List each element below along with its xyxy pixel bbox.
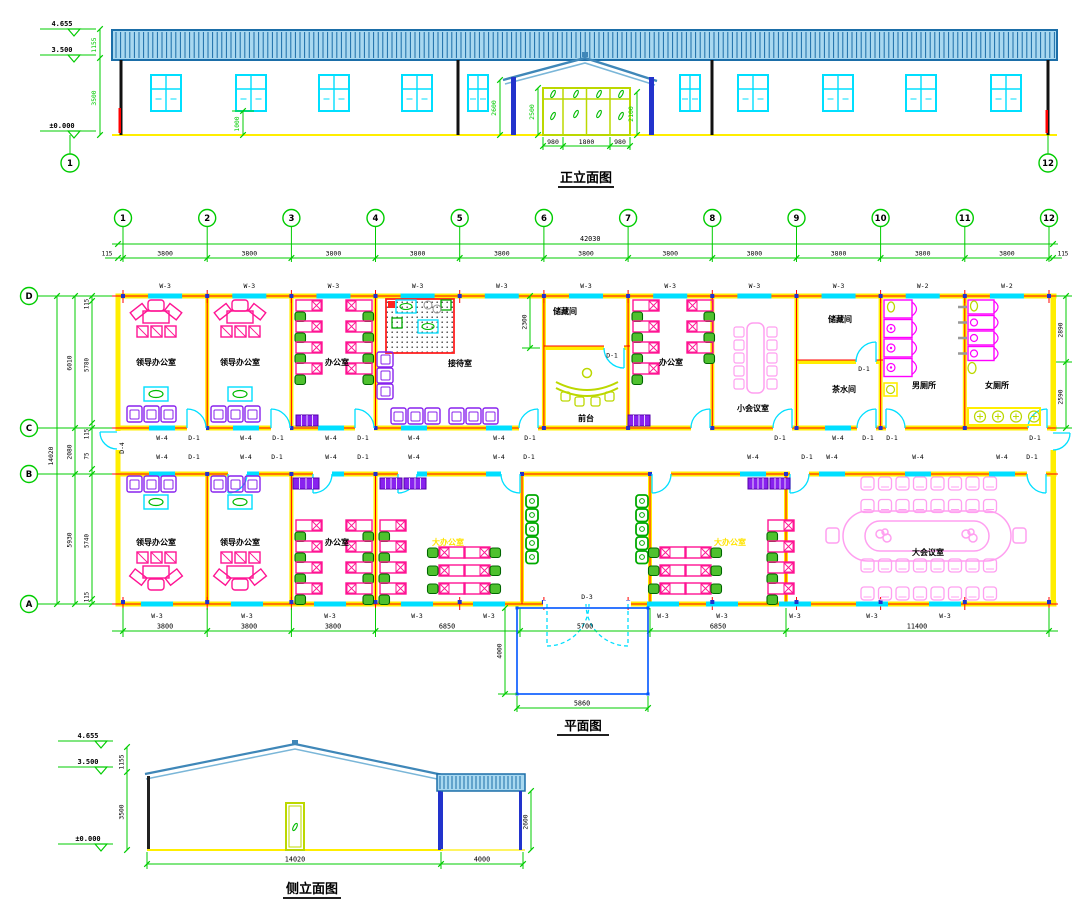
chair	[295, 354, 306, 364]
chair	[966, 477, 979, 490]
window-corridor	[989, 472, 1015, 477]
room-label-womens_toilet: 女厕所	[985, 380, 1009, 390]
chair	[295, 574, 306, 584]
chair	[861, 477, 874, 490]
column-block	[963, 600, 967, 604]
planter	[636, 495, 648, 508]
chair	[490, 566, 501, 576]
dim-label: 11400	[907, 623, 927, 631]
window	[680, 75, 700, 111]
dim-label: 3800	[241, 623, 257, 631]
glass-leaf-decal	[292, 823, 299, 832]
glass-leaf-decal	[618, 112, 625, 121]
column-block	[784, 472, 788, 476]
porch-column	[511, 77, 516, 135]
reception-area	[377, 299, 498, 424]
window-tag: W-3	[411, 612, 423, 620]
window-tag: W-3	[159, 282, 171, 290]
planter	[636, 551, 648, 564]
column-block	[458, 294, 462, 298]
toilet	[890, 366, 892, 368]
dim-label: 5930	[67, 532, 74, 547]
door-tag: D-1	[188, 453, 200, 461]
window	[236, 75, 266, 111]
window-tag: W-4	[408, 453, 420, 461]
door-opening	[271, 425, 290, 431]
door-opening	[691, 425, 710, 431]
column-block	[963, 426, 967, 430]
column-block	[458, 600, 462, 604]
window-south	[856, 602, 888, 607]
planter	[526, 537, 538, 550]
toilet	[971, 350, 978, 357]
chair	[649, 566, 660, 576]
door-opening	[857, 425, 876, 431]
line	[376, 0, 605, 474]
window	[319, 75, 349, 111]
door-tag: D-1	[524, 434, 536, 442]
window-tag: W-2	[1001, 282, 1013, 290]
level-triangle	[95, 741, 107, 748]
dim-label: 3800	[157, 250, 173, 258]
dim-label: 1155	[91, 37, 98, 52]
dim-label: 3800	[241, 250, 257, 258]
chair	[711, 566, 722, 576]
chair	[734, 327, 744, 337]
chair	[295, 333, 306, 343]
window-tag: W-3	[496, 282, 508, 290]
door-tag: D-1	[357, 453, 369, 461]
level-label: ±0.000	[75, 835, 100, 843]
dim-label: 115	[85, 591, 91, 602]
door-tag: D-1	[1029, 434, 1041, 442]
executive-chair	[232, 579, 248, 590]
planter-plant	[640, 527, 645, 532]
chair	[931, 587, 944, 600]
column-block	[374, 472, 378, 476]
sofa	[161, 476, 176, 492]
door-tag: D-1	[357, 434, 369, 442]
entry-doors	[543, 88, 630, 135]
chair	[295, 312, 306, 322]
planter-plant	[530, 513, 535, 518]
glass-leaf-decal	[550, 90, 557, 99]
chair	[896, 587, 909, 600]
sofa-cushion	[469, 412, 478, 421]
sofa	[377, 368, 393, 383]
leader-desk-set	[130, 300, 182, 337]
chair	[704, 312, 715, 322]
tv-cabinet	[228, 495, 252, 509]
axis-bubble-number: D	[25, 292, 32, 302]
room-label-leader_office: 领导办公室	[220, 537, 260, 547]
sofa	[127, 406, 142, 422]
planter-plant	[640, 499, 645, 504]
window-north	[316, 294, 350, 299]
chair	[295, 553, 306, 563]
window-tag: W-3	[664, 282, 676, 290]
dim-label: 2500	[528, 104, 536, 120]
dim-label: 6010	[67, 355, 74, 370]
window-tag: W-4	[156, 434, 168, 442]
level-label: 4.655	[77, 732, 98, 740]
dim-label: 980	[614, 138, 626, 146]
dim-label: 3800	[915, 250, 931, 258]
porch-column	[649, 77, 654, 135]
window-tag: W-4	[325, 453, 337, 461]
chair	[379, 553, 390, 563]
door-tag: D-1	[188, 434, 200, 442]
chair	[363, 312, 374, 322]
dim-label: 42030	[580, 235, 600, 243]
planter-plant	[640, 555, 645, 560]
window-north	[653, 294, 687, 299]
glass-leaf-decal	[596, 110, 603, 119]
toilet	[890, 347, 892, 349]
glass-leaf-decal	[596, 90, 603, 99]
chair	[949, 477, 962, 490]
ridge-finial	[292, 740, 298, 745]
womens-toilet-fixtures	[958, 300, 1040, 425]
toilet-stall	[968, 347, 994, 361]
planter-plant	[530, 555, 535, 560]
window-tag: W-3	[716, 612, 728, 620]
desk-wing	[248, 304, 265, 320]
chair	[767, 340, 777, 350]
window-south	[401, 602, 433, 607]
window-tag: W-3	[483, 612, 495, 620]
column-block	[795, 294, 799, 298]
chair	[632, 333, 643, 343]
toilet	[968, 363, 976, 374]
chair	[1013, 528, 1026, 543]
axis-bubble-number: 5	[457, 214, 463, 224]
door-tag: D-1	[801, 453, 813, 461]
window-north	[148, 294, 182, 299]
planter-plant	[640, 513, 645, 518]
chair	[767, 574, 778, 584]
window-tag: W-4	[493, 453, 505, 461]
window-north	[990, 294, 1024, 299]
ridge-finial	[582, 52, 588, 57]
tv-cabinet	[144, 387, 168, 401]
chair	[363, 333, 374, 343]
plant	[149, 499, 163, 506]
window-south	[314, 602, 346, 607]
dim-label: 115	[1058, 251, 1069, 258]
room-label-mens_toilet: 男厕所	[912, 380, 936, 390]
sofa	[408, 408, 423, 424]
sofa	[144, 476, 159, 492]
window	[906, 75, 936, 111]
dim-label: 3800	[325, 623, 341, 631]
door-opening	[398, 471, 417, 477]
line	[137, 326, 148, 337]
axis-bubble-number: 1	[67, 159, 73, 169]
chair	[767, 353, 777, 363]
column-block	[121, 294, 125, 298]
axis-bubble-number: 12	[1042, 159, 1054, 169]
axis-bubble-number: 3	[288, 214, 294, 224]
window	[402, 75, 432, 111]
receptionist	[583, 369, 592, 378]
door-opening	[886, 425, 905, 431]
room-label-small_meeting: 小会议室	[736, 403, 769, 413]
tv-cabinet	[144, 495, 168, 509]
dim-label: 115	[85, 298, 91, 309]
column	[711, 60, 714, 135]
furniture	[127, 299, 1040, 605]
chair	[711, 548, 722, 558]
drawing-title: 侧立面图	[286, 881, 338, 897]
door-tag: D-1	[272, 434, 284, 442]
room-label-storage: 储藏间	[827, 314, 852, 324]
sofa-cushion	[411, 412, 420, 421]
sofa-cushion	[231, 410, 240, 419]
planter	[636, 509, 648, 522]
door-opening	[652, 471, 671, 477]
dim-label: 5700	[577, 623, 593, 631]
dim-label: 1155	[119, 754, 126, 769]
entrance-opening	[543, 601, 631, 608]
window-corridor	[149, 426, 175, 431]
sofa	[425, 408, 440, 424]
window-tag: W-3	[412, 282, 424, 290]
chair	[767, 366, 777, 376]
window-south	[647, 602, 679, 607]
window-corridor	[905, 472, 931, 477]
level-triangle	[95, 767, 107, 774]
chair	[984, 477, 997, 490]
drawing-title: 平面图	[564, 718, 602, 733]
level-triangle	[68, 29, 80, 36]
window-tag: W-4	[996, 453, 1008, 461]
chair	[767, 379, 777, 389]
door-tag: D-1	[523, 453, 535, 461]
column-block	[542, 426, 546, 430]
interior-wall	[544, 346, 604, 350]
canopy: 2600	[437, 774, 534, 853]
door-tag: D-1	[886, 434, 898, 442]
door-opening	[187, 425, 206, 431]
sofa	[391, 408, 406, 424]
column-block	[374, 600, 378, 604]
axis-bubble-number: 1	[120, 214, 126, 224]
chair	[490, 584, 501, 594]
dim-label: 3800	[662, 250, 678, 258]
chair	[379, 532, 390, 542]
dim-label: 2100	[627, 106, 635, 122]
dim-label: 2600	[490, 100, 498, 116]
chair	[711, 584, 722, 594]
level-triangle	[95, 844, 107, 851]
toilet	[971, 319, 978, 326]
leader-desk-set	[214, 552, 267, 590]
column-block	[879, 294, 883, 298]
reception-counter	[556, 382, 618, 390]
window	[738, 75, 768, 111]
window-tag: W-3	[866, 612, 878, 620]
window	[991, 75, 1021, 111]
dim-label: 3800	[831, 250, 847, 258]
window-north	[906, 294, 940, 299]
hall-planters	[526, 495, 648, 564]
dim-label: 2080	[67, 444, 74, 459]
column	[457, 60, 460, 135]
line	[137, 552, 148, 563]
planter	[636, 523, 648, 536]
porch-corner	[647, 607, 650, 610]
toilet-stall	[884, 339, 912, 357]
dim-label: 3800	[157, 623, 173, 631]
window-tag: W-4	[493, 434, 505, 442]
door-tag: D-1	[606, 352, 618, 360]
dim-label: 3500	[91, 90, 98, 105]
planter	[526, 495, 538, 508]
conference-table	[747, 323, 764, 393]
column-block	[710, 294, 714, 298]
window-north	[485, 294, 519, 299]
porch-corner	[647, 693, 650, 696]
chair	[704, 333, 715, 343]
sofa	[245, 476, 260, 492]
window-north	[569, 294, 603, 299]
door-opening	[519, 425, 538, 431]
glass-leaf-decal	[573, 90, 580, 99]
plan-dims: 1234567891011124203038003800380038003800…	[21, 210, 1073, 638]
window-tag: W-4	[912, 453, 924, 461]
window-tag: W-4	[832, 434, 844, 442]
column-block	[205, 600, 209, 604]
small-meeting-set	[734, 323, 777, 393]
window-south	[473, 602, 505, 607]
axis-bubble-number: 11	[959, 214, 971, 224]
axis-bubble-number: 8	[709, 214, 715, 224]
chair	[363, 595, 374, 605]
line	[604, 0, 786, 474]
sofa-cushion	[452, 412, 461, 421]
column-block	[879, 426, 883, 430]
room-label-big_meeting: 大会议室	[912, 547, 944, 557]
side-dims: 140204000	[144, 852, 526, 869]
desk	[143, 566, 169, 578]
window-corridor	[486, 426, 512, 431]
planter-plant	[530, 527, 535, 532]
chair	[931, 477, 944, 490]
dim-label: 1000	[234, 116, 241, 131]
room-label-leader_office: 领导办公室	[136, 537, 176, 547]
line	[249, 552, 260, 563]
dim-label: 3800	[578, 250, 594, 258]
chair	[363, 574, 374, 584]
dim-label: 3800	[326, 250, 342, 258]
plant	[149, 391, 163, 398]
dim-label: 6850	[439, 623, 455, 631]
window-tag: W-4	[325, 434, 337, 442]
chair	[767, 327, 777, 337]
desk	[227, 311, 253, 323]
chair	[734, 340, 744, 350]
plant	[233, 499, 247, 506]
sofa	[211, 476, 226, 492]
chair	[295, 375, 306, 385]
sofa-cushion	[147, 480, 156, 489]
dim-label: 2600	[523, 814, 530, 829]
sofa	[245, 406, 260, 422]
chair	[379, 574, 390, 584]
sofa-cushion	[231, 480, 240, 489]
cad-sheet: 260025002100980180098010004.6553.500±0.0…	[0, 0, 1089, 907]
cad-drawing-svg: 260025002100980180098010004.6553.500±0.0…	[0, 0, 1089, 907]
column-block	[710, 600, 714, 604]
door-opening	[313, 471, 332, 477]
side-elevation: 4.6553.500±0.000115535002600140204000侧立面…	[58, 732, 534, 898]
line	[235, 326, 246, 337]
column-block	[1047, 600, 1051, 604]
line	[235, 552, 246, 563]
axis-bubble-number: 6	[541, 214, 547, 224]
line	[151, 326, 162, 337]
dim-label: 115	[102, 251, 113, 258]
basin	[887, 386, 895, 394]
line	[165, 326, 176, 337]
line	[221, 552, 232, 563]
sofa	[228, 406, 243, 422]
sofa	[211, 406, 226, 422]
leader-desk-set	[130, 552, 183, 590]
door-arc	[100, 432, 117, 449]
sofa-cushion	[164, 480, 173, 489]
column-block	[542, 294, 546, 298]
window-corridor	[740, 472, 766, 477]
sofa	[127, 476, 142, 492]
column-block	[963, 294, 967, 298]
chair	[363, 375, 374, 385]
dim-label: 2890	[1058, 322, 1065, 337]
chair	[295, 532, 306, 542]
window-north	[232, 294, 266, 299]
room-labels: 领导办公室领导办公室办公室接待室储藏间前台办公室小会议室储藏间茶水间男厕所女厕所…	[136, 306, 1009, 557]
window-tag: W-3	[244, 282, 256, 290]
window-tag: W-4	[156, 453, 168, 461]
room-label-storage: 储藏间	[552, 306, 577, 316]
dim-label: 3800	[999, 250, 1015, 258]
desk-wing	[165, 569, 182, 585]
desk	[227, 566, 253, 578]
room-label-office: 办公室	[325, 357, 349, 367]
window-corridor	[318, 426, 344, 431]
chair	[632, 312, 643, 322]
window-north	[401, 294, 435, 299]
window-corridor	[233, 426, 259, 431]
planter-plant	[530, 499, 535, 504]
drawing-title: 正立面图	[560, 170, 612, 186]
window-tag: W-3	[833, 282, 845, 290]
glass-leaf-decal	[573, 110, 580, 119]
door-opening	[1027, 471, 1046, 477]
column-block	[289, 294, 293, 298]
room-label-leader_office: 领导办公室	[220, 357, 260, 367]
window-tag: W-3	[789, 612, 801, 620]
window-tag: W-4	[408, 434, 420, 442]
axis-bubble-number: 7	[625, 214, 631, 224]
desk-wing	[214, 304, 231, 320]
sofa-cushion	[248, 480, 257, 489]
executive-chair	[232, 300, 248, 311]
window-tag: W-3	[241, 612, 253, 620]
door-tag: D-1	[858, 365, 870, 373]
window	[151, 75, 181, 111]
